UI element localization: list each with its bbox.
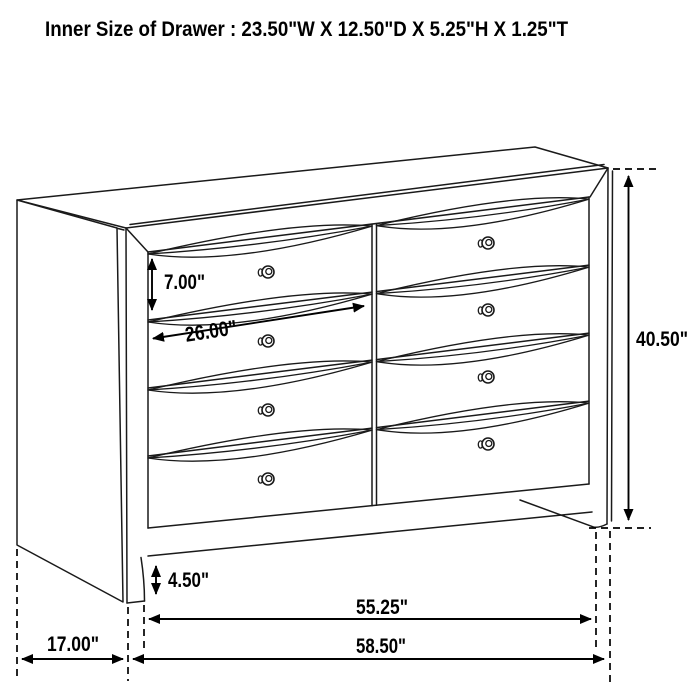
- dresser-dimension-diagram: Inner Size of Drawer : 23.50"W X 12.50"D…: [0, 0, 700, 700]
- dimension-case-width: 55.25": [149, 596, 591, 619]
- dresser-side-panel: [17, 200, 123, 602]
- dimension-label: 26.00": [184, 316, 239, 347]
- drawer-knob: [478, 237, 494, 249]
- drawer-knob: [258, 404, 274, 416]
- dimension-overall-width: 58.50": [133, 635, 604, 659]
- drawer-knob: [258, 473, 274, 485]
- drawer-lens-row3-left: [148, 361, 372, 393]
- drawer-knob: [258, 266, 274, 278]
- dimension-label: 40.50": [636, 328, 688, 351]
- drawer-lens-row1-right: [377, 198, 590, 229]
- dimension-side-depth: 17.00": [22, 633, 123, 659]
- dimension-label: 55.25": [356, 596, 408, 619]
- diagram-title: Inner Size of Drawer : 23.50"W X 12.50"D…: [45, 17, 568, 41]
- dimension-label: 4.50": [168, 569, 209, 592]
- bracket-foot-right: [520, 500, 607, 527]
- dresser-drawing: [17, 147, 613, 603]
- drawer-knob: [258, 335, 274, 347]
- drawer-knob: [478, 438, 494, 450]
- drawer-lens-row2-right: [377, 266, 590, 297]
- drawer-lens-row4-left: [148, 429, 372, 461]
- drawer-lens-row4-right: [377, 402, 590, 433]
- drawer-knob: [478, 371, 494, 383]
- bracket-foot-left: [127, 558, 145, 604]
- dimension-label: 17.00": [47, 633, 99, 656]
- dimension-label: 7.00": [164, 271, 205, 294]
- base-rail: [148, 484, 592, 556]
- drawer-lens-row3-right: [377, 334, 590, 365]
- dimension-label: 58.50": [356, 635, 406, 658]
- dimension-drawer-front-height: 7.00": [152, 259, 205, 310]
- dimension-overall-height: 40.50": [629, 176, 689, 520]
- diagram-canvas: Inner Size of Drawer : 23.50"W X 12.50"D…: [0, 0, 700, 700]
- center-divider: [372, 224, 377, 506]
- drawer-lens-row1-left: [148, 225, 372, 257]
- drawer-knob: [478, 304, 494, 316]
- dimension-foot-height: 4.50": [156, 566, 209, 594]
